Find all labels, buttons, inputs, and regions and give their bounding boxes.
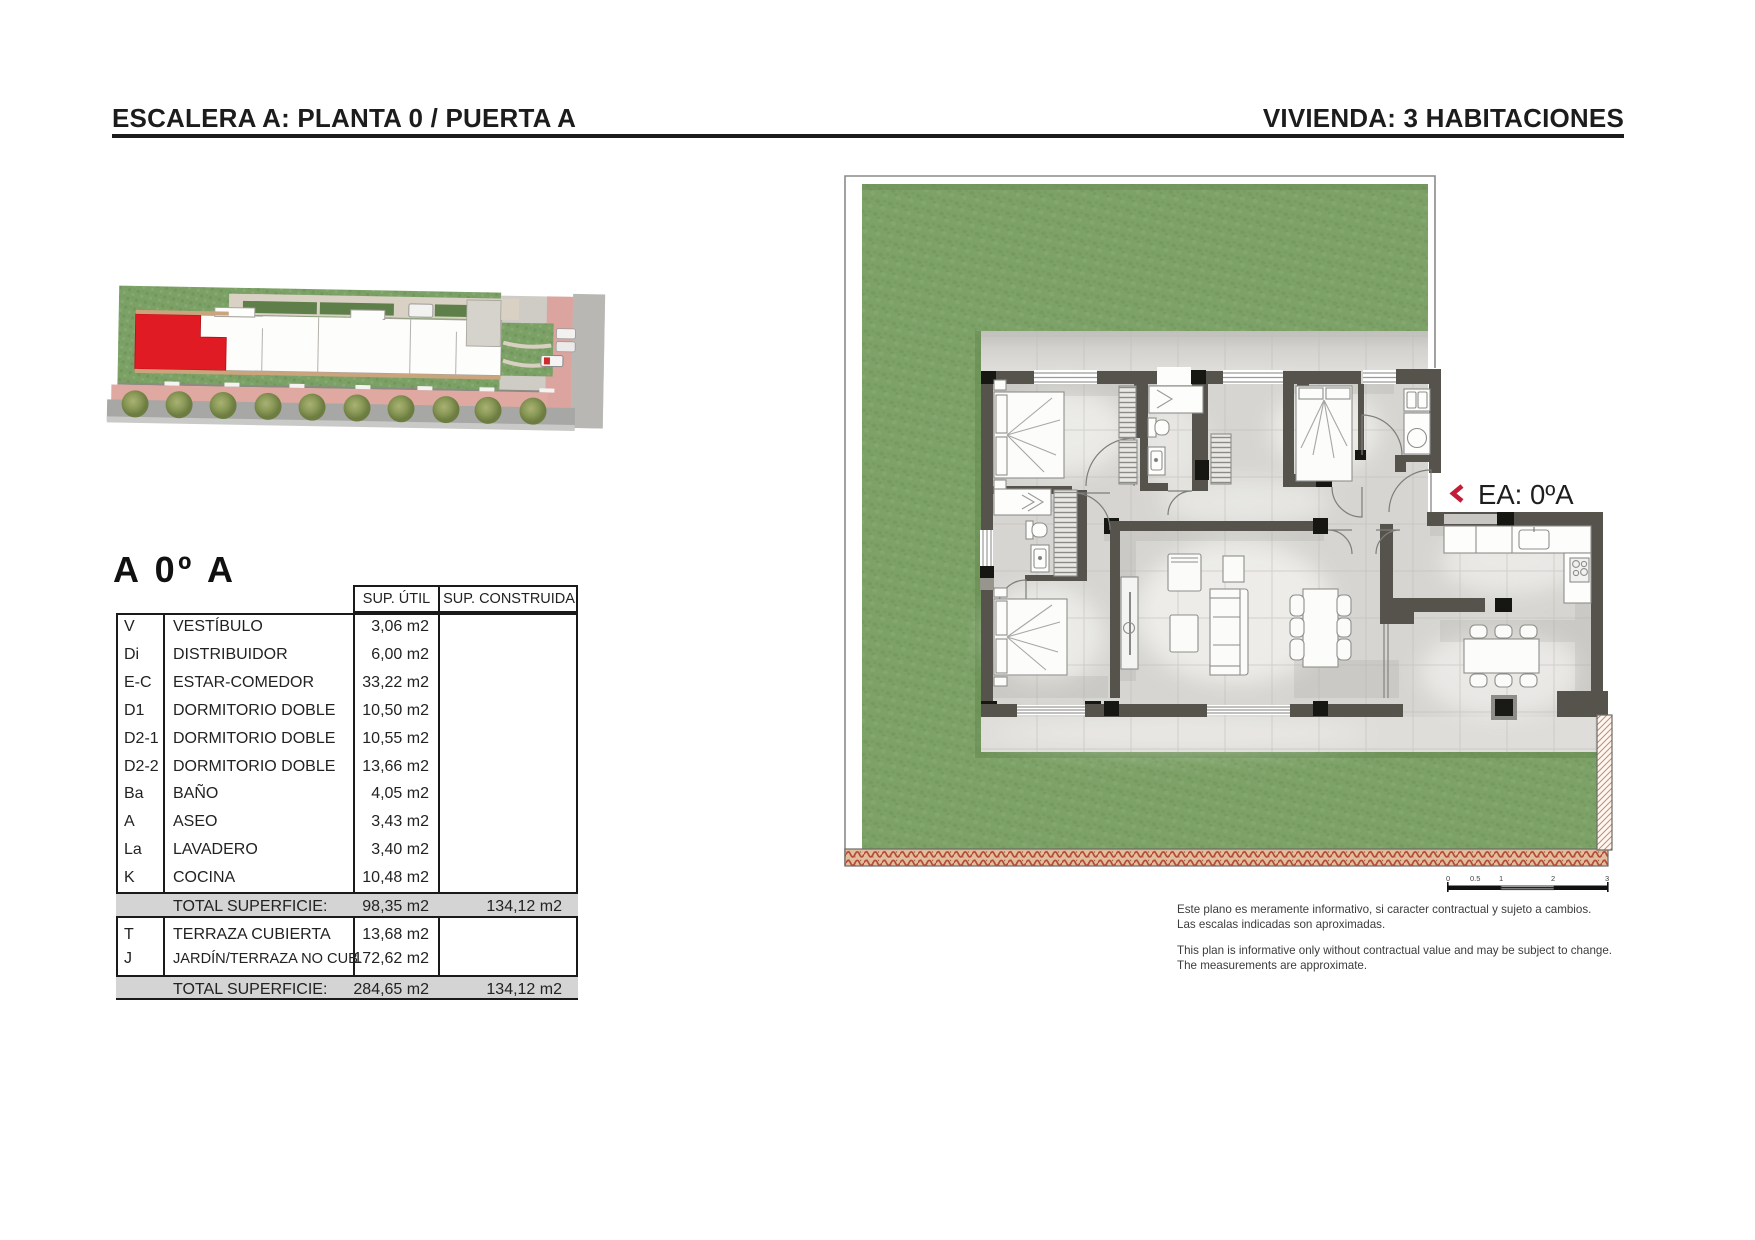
svg-text:0.5: 0.5 bbox=[1470, 874, 1480, 883]
svg-text:1: 1 bbox=[1499, 874, 1503, 883]
svg-text:EA: 0ºA: EA: 0ºA bbox=[1478, 479, 1574, 510]
svg-text:3: 3 bbox=[1605, 874, 1609, 883]
svg-text:0: 0 bbox=[1446, 874, 1450, 883]
svg-text:2: 2 bbox=[1551, 874, 1555, 883]
